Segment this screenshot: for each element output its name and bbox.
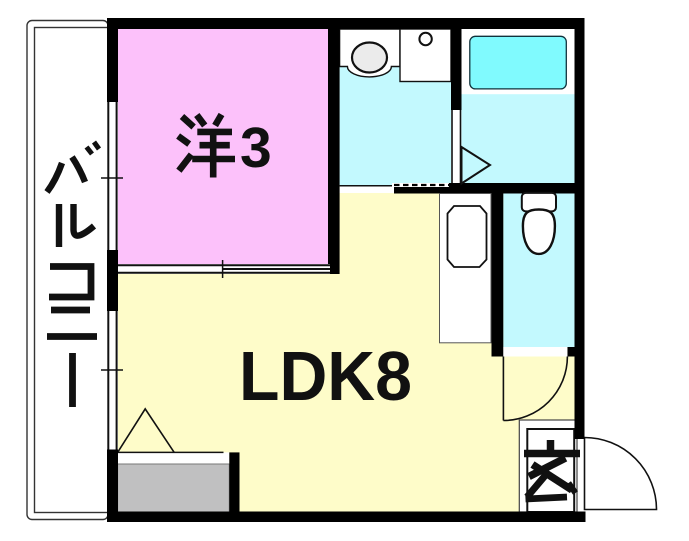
svg-text:3: 3 <box>240 116 272 180</box>
svg-text:LDK8: LDK8 <box>239 337 412 415</box>
